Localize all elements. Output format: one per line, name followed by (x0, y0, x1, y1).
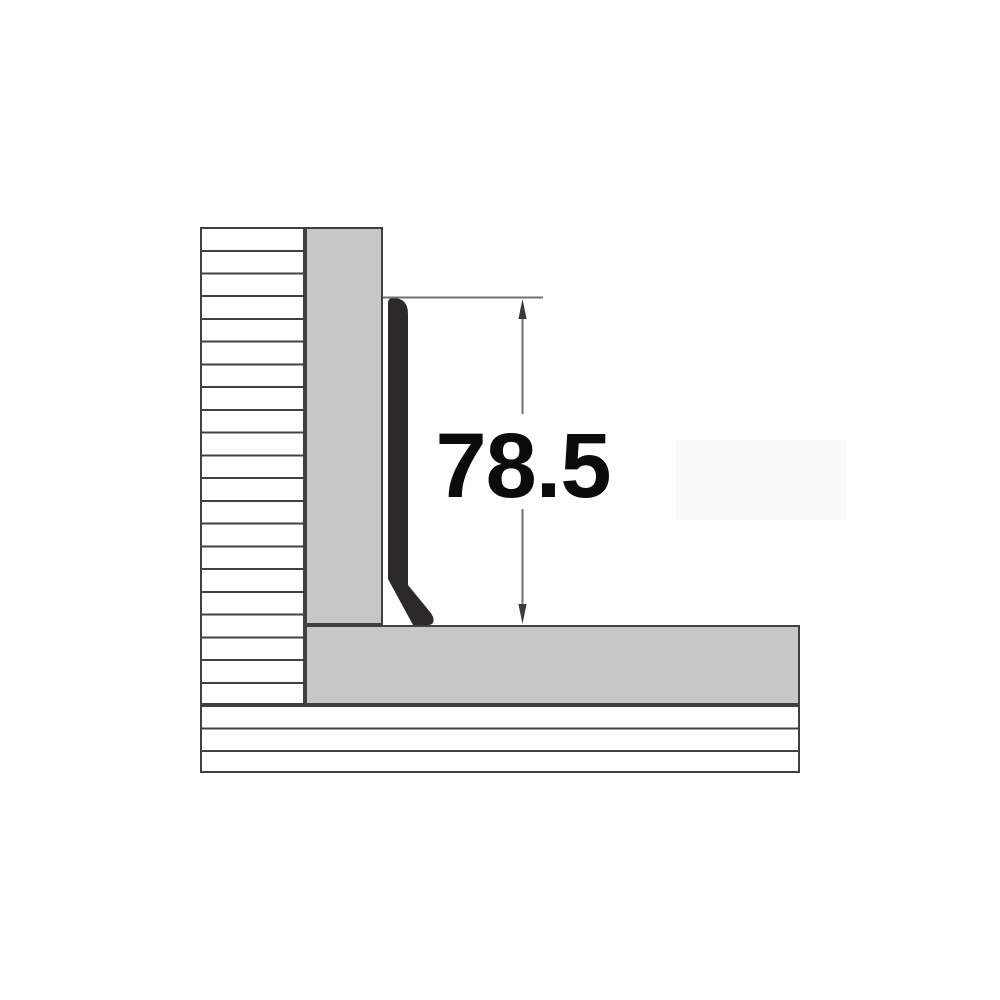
skirting-cross-section-diagram: 78.5 (0, 0, 1000, 1000)
arrow-up-icon (518, 299, 526, 319)
height-dimension-label: 78.5 (418, 419, 628, 513)
arrow-down-icon (518, 604, 526, 624)
